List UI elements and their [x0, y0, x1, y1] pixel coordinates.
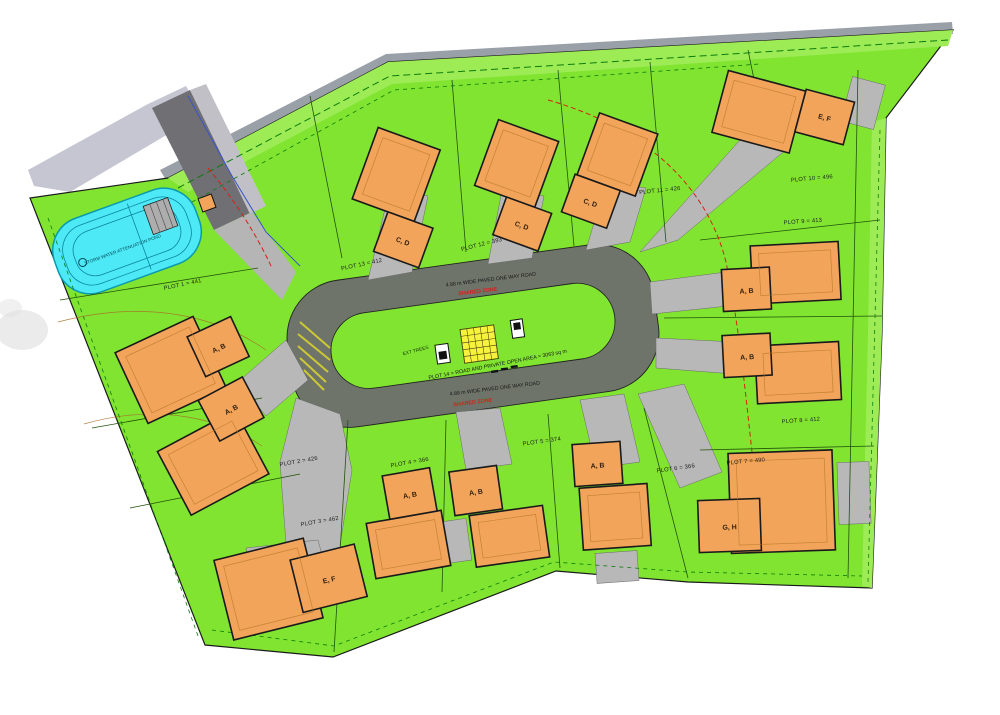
parking-pad: [595, 551, 639, 584]
bench-marker-fill: [438, 351, 447, 360]
house-label: A, B: [740, 354, 754, 362]
bench-marker-fill: [513, 322, 521, 330]
house-label: G, H: [722, 524, 737, 531]
house-label: A, B: [739, 288, 753, 296]
site-plan-canvas: STORM WATER ATTENUATION POND: [0, 0, 1000, 715]
house-body: [469, 505, 550, 567]
communal-square: [460, 325, 498, 363]
house-label: A, B: [590, 462, 604, 470]
house-body: [366, 510, 451, 578]
parking-pad: [837, 461, 871, 524]
site-plan-drawing: STORM WATER ATTENUATION POND: [0, 0, 1000, 715]
